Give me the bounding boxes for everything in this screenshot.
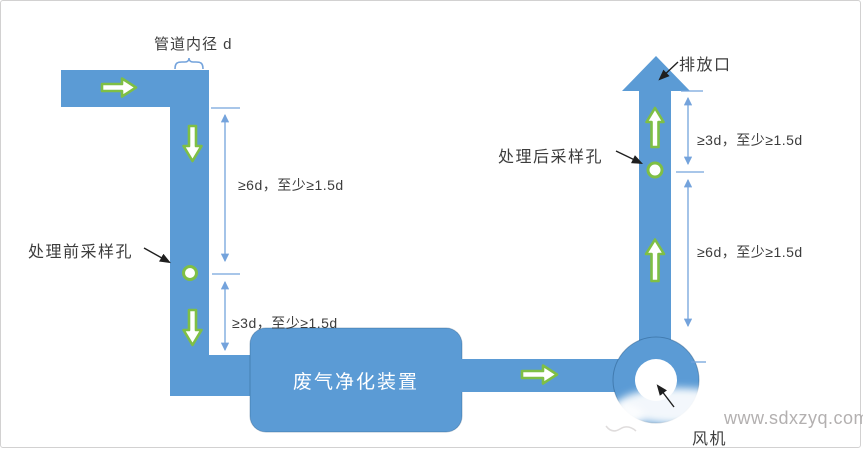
- outlet-label: 排放口: [679, 51, 732, 75]
- dimension-note-left-upper: ≥6d，至少≥1.5d: [238, 175, 344, 195]
- smudge-patch: [580, 404, 644, 428]
- inlet-duct-vertical: [170, 70, 209, 396]
- post-sampling-hole-icon: [648, 163, 662, 177]
- post-sampling-port-label: 处理后采样孔: [498, 143, 603, 167]
- purifier-unit-label: 废气净化装置: [250, 328, 462, 432]
- duct-elbow-to-purifier: [170, 355, 256, 396]
- dimension-note-right-lower: ≥6d，至少≥1.5d: [697, 242, 803, 262]
- dimension-note-right-upper: ≥3d，至少≥1.5d: [697, 130, 803, 150]
- pre-sampling-hole-icon: [184, 267, 197, 280]
- pointer-arrow-pre-sampling: [144, 248, 169, 262]
- diameter-brace-icon: [175, 58, 203, 69]
- fan-label: 风机: [692, 425, 727, 449]
- pre-sampling-port-label: 处理前采样孔: [28, 238, 133, 262]
- pointer-arrow-post-sampling: [616, 151, 641, 163]
- dimension-note-left-lower: ≥3d，至少≥1.5d: [232, 313, 338, 333]
- diagram-canvas: 管道内径 d 处理前采样孔 处理后采样孔 排放口 风机 废气净化装置 ≥6d，至…: [0, 0, 863, 454]
- watermark-text: www.sdxzyq.com: [724, 408, 863, 429]
- pipe-diameter-label: 管道内径 d: [154, 33, 233, 54]
